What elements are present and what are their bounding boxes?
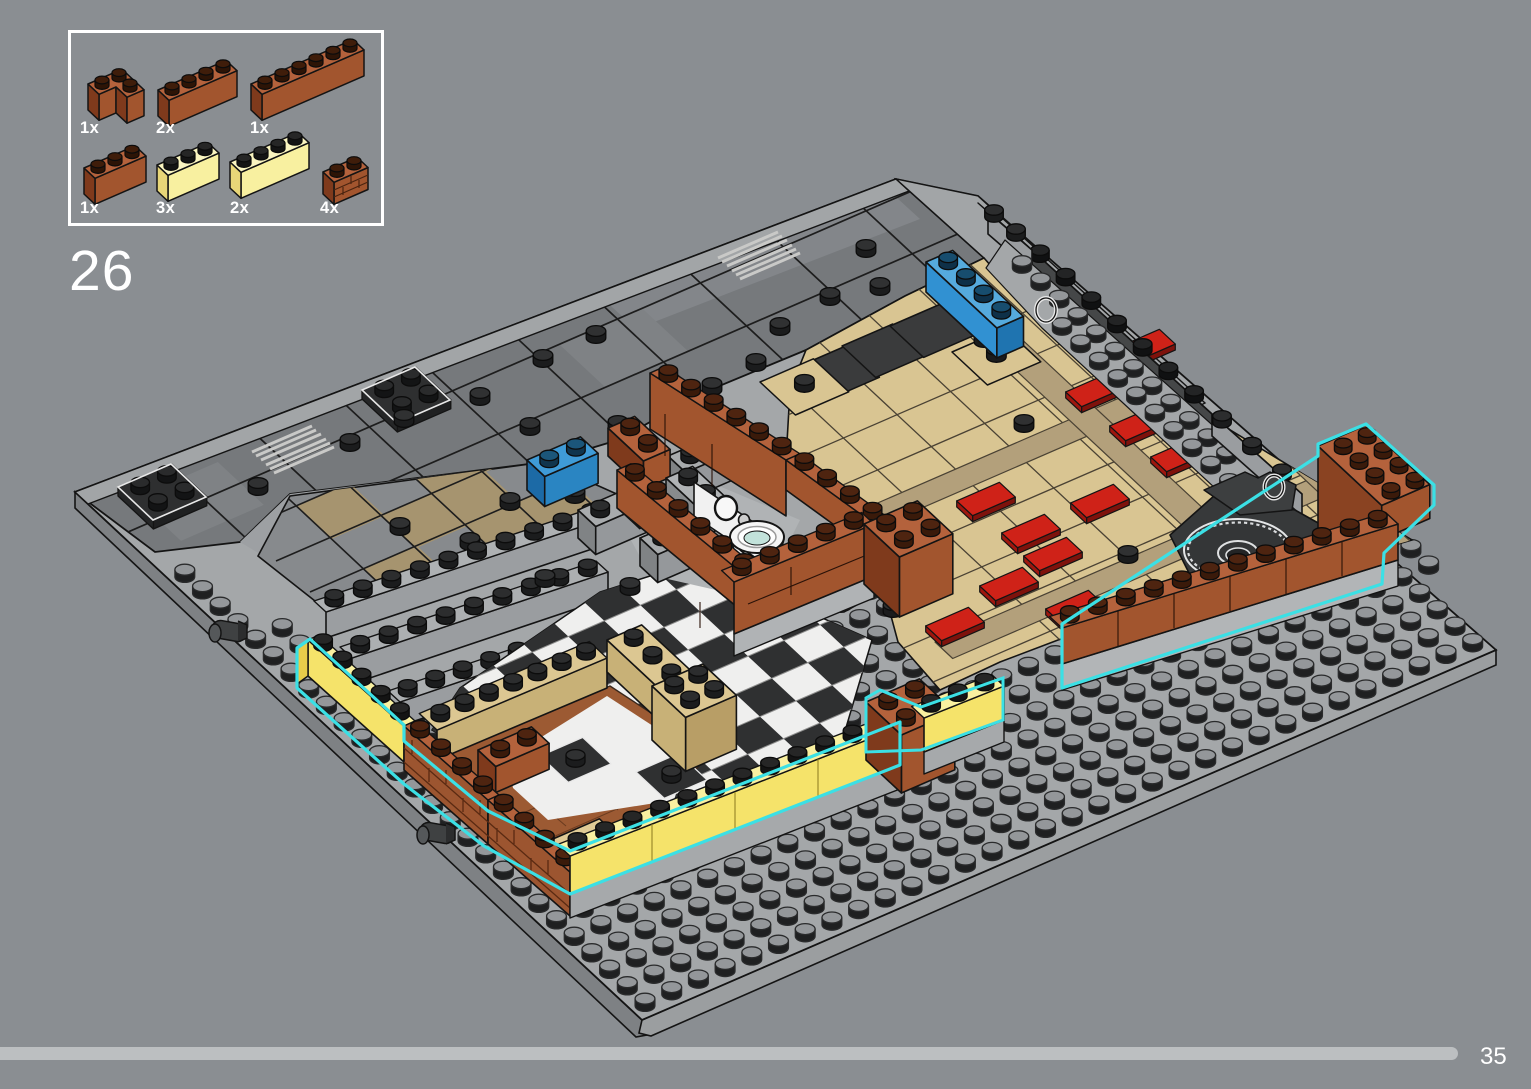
svg-text:2x: 2x xyxy=(156,119,176,137)
svg-text:26: 26 xyxy=(69,239,134,303)
svg-text:3x: 3x xyxy=(156,199,176,217)
svg-text:1x: 1x xyxy=(80,199,100,217)
svg-text:35: 35 xyxy=(1480,1043,1507,1070)
svg-text:2x: 2x xyxy=(230,199,250,217)
svg-text:1x: 1x xyxy=(80,119,100,137)
svg-text:1x: 1x xyxy=(250,119,270,137)
svg-text:4x: 4x xyxy=(320,199,340,217)
